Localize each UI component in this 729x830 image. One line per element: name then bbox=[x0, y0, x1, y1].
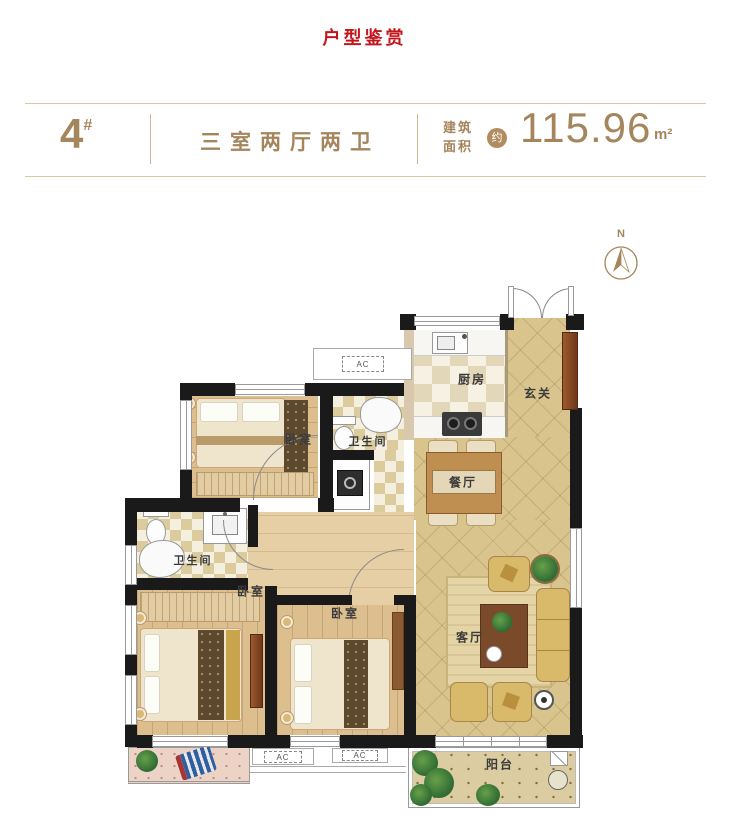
kitchen-side-wall bbox=[404, 330, 414, 440]
wall-segment bbox=[320, 395, 333, 500]
window bbox=[180, 400, 192, 470]
balcony-plant-icon bbox=[476, 784, 500, 806]
wall-segment bbox=[125, 512, 137, 545]
wall-segment bbox=[125, 585, 137, 605]
entry-floor bbox=[505, 318, 570, 437]
floorplan-page: 户型鉴赏 4# 三室两厅两卫 建筑 面积 约 115.96 m² N bbox=[0, 0, 729, 830]
wall-segment bbox=[570, 608, 582, 735]
balcony-plant-icon bbox=[410, 784, 432, 806]
room-label-bedroom-bottom-middle: 卧室 bbox=[331, 605, 359, 622]
entry-door-arc-left bbox=[512, 288, 542, 318]
area-label-line2: 面积 bbox=[443, 138, 473, 157]
balcony-basin bbox=[550, 751, 568, 766]
armchair bbox=[450, 682, 488, 722]
wall-segment bbox=[547, 735, 583, 748]
wall-segment bbox=[248, 505, 258, 547]
header-divider-2 bbox=[417, 114, 418, 164]
kitchen-faucet bbox=[462, 334, 467, 339]
area-label-line1: 建筑 bbox=[443, 119, 473, 138]
room-label-bath-left: 卫生间 bbox=[174, 552, 213, 568]
platform-edge-line bbox=[250, 772, 406, 773]
ac-unit-label: AC bbox=[264, 751, 302, 763]
wall-segment bbox=[125, 725, 137, 747]
wall-segment bbox=[228, 735, 290, 748]
page-title: 户型鉴赏 bbox=[0, 24, 729, 50]
room-label-bedroom-top-left: 卧室 bbox=[285, 431, 313, 448]
layout-type: 三室两厅两卫 bbox=[165, 126, 415, 156]
table-plant-icon bbox=[492, 612, 512, 632]
bed-runner bbox=[196, 436, 286, 445]
floor-plant-icon bbox=[532, 556, 558, 582]
bed-throw bbox=[344, 640, 368, 728]
entry-door-leaf bbox=[568, 286, 574, 316]
bed-pillow bbox=[144, 676, 160, 714]
wall-segment bbox=[318, 498, 334, 512]
stove-burner bbox=[447, 417, 460, 430]
bath-top-passage-floor bbox=[374, 450, 404, 513]
nightstand-lamp bbox=[281, 712, 293, 724]
window bbox=[152, 736, 228, 747]
room-label-kitchen: 厨房 bbox=[458, 371, 486, 388]
room-label-living: 客厅 bbox=[456, 629, 484, 646]
area-value: 115.96 bbox=[520, 104, 651, 152]
bedroom-cabinet bbox=[392, 612, 404, 690]
wall-segment bbox=[404, 605, 416, 735]
wall-segment bbox=[277, 595, 352, 605]
bed-pillow bbox=[242, 402, 280, 422]
room-label-balcony: 阳台 bbox=[486, 756, 514, 773]
ac-unit-label: AC bbox=[342, 356, 384, 372]
wall-segment bbox=[345, 383, 404, 396]
balcony-sliding-door bbox=[435, 736, 547, 747]
window bbox=[125, 545, 137, 585]
bed-throw bbox=[226, 630, 240, 720]
window bbox=[414, 316, 500, 326]
area-label: 建筑 面积 bbox=[443, 119, 473, 157]
bed-pillow bbox=[294, 686, 312, 724]
sofa-main bbox=[536, 588, 570, 682]
wall-segment bbox=[125, 498, 240, 512]
unit-number: 4# bbox=[60, 110, 92, 158]
floor-lamp-center bbox=[541, 697, 547, 703]
balcony-table bbox=[548, 770, 568, 790]
toilet-tank bbox=[332, 416, 356, 425]
wall-segment bbox=[394, 595, 416, 605]
bathtub-icon bbox=[360, 397, 402, 433]
kitchen-sink-basin bbox=[437, 336, 455, 350]
room-label-bath-top: 卫生间 bbox=[349, 433, 388, 449]
window bbox=[125, 675, 137, 725]
entry-door-leaf bbox=[508, 286, 514, 318]
small-balcony-plant-icon bbox=[136, 750, 158, 772]
table-tray bbox=[486, 646, 502, 662]
washer-drum bbox=[344, 477, 356, 489]
bed-pillow bbox=[144, 634, 160, 672]
platform-edge-line bbox=[250, 766, 406, 767]
tv-cabinet bbox=[250, 634, 263, 708]
wall-segment bbox=[340, 735, 436, 748]
room-label-dining: 餐厅 bbox=[449, 474, 477, 491]
basin-faucet bbox=[223, 512, 227, 516]
unit-suffix: # bbox=[83, 117, 92, 134]
compass-icon bbox=[600, 242, 642, 284]
entry-cabinet bbox=[562, 332, 578, 410]
kitchen-entry-divider bbox=[505, 330, 508, 437]
nightstand-lamp bbox=[281, 616, 293, 628]
header-bottom-line bbox=[25, 176, 706, 177]
wall-segment bbox=[265, 586, 277, 735]
wall-segment bbox=[566, 314, 584, 330]
room-label-bedroom-bottom-left: 卧室 bbox=[237, 583, 265, 600]
ac-unit-label: AC bbox=[342, 750, 378, 761]
bed-throw bbox=[198, 630, 224, 720]
wall-segment bbox=[332, 450, 374, 460]
room-label-entry: 玄关 bbox=[524, 385, 552, 402]
area-unit: m² bbox=[654, 126, 672, 143]
wall-segment bbox=[137, 578, 248, 590]
wall-segment bbox=[137, 735, 153, 748]
header-divider-1 bbox=[150, 114, 151, 164]
compass-north-label: N bbox=[602, 228, 640, 240]
window bbox=[235, 384, 305, 395]
approx-badge: 约 bbox=[487, 128, 507, 148]
bed-pillow bbox=[294, 644, 312, 682]
window bbox=[290, 736, 340, 747]
bed-pillow bbox=[200, 402, 238, 422]
stove-burner bbox=[464, 417, 477, 430]
window bbox=[570, 528, 582, 608]
wall-segment bbox=[570, 408, 582, 528]
wall-segment bbox=[125, 655, 137, 675]
window bbox=[125, 605, 137, 655]
